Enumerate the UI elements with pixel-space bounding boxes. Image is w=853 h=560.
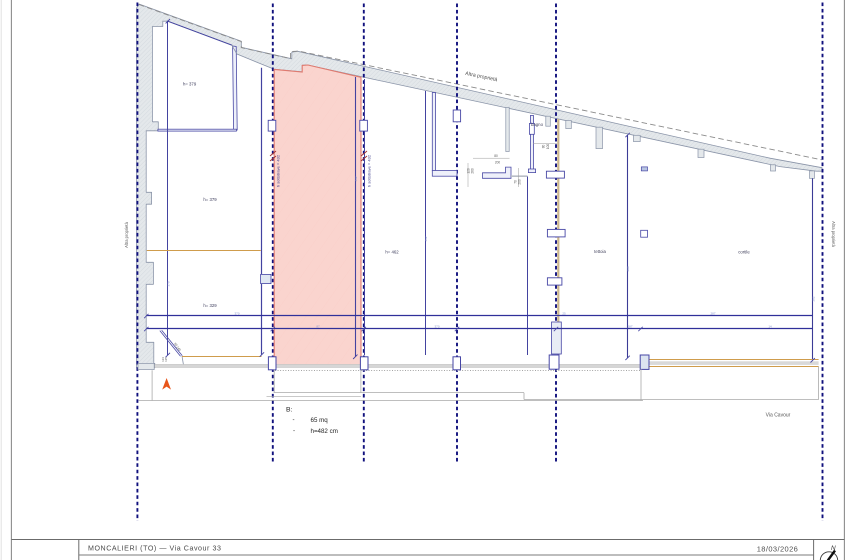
svg-text:-: -: [293, 428, 295, 435]
svg-text:h sottotrave = 432: h sottotrave = 432: [276, 154, 281, 187]
svg-text:287: 287: [710, 312, 715, 316]
svg-text:282: 282: [812, 296, 816, 301]
svg-text:bagno: bagno: [531, 122, 544, 127]
svg-text:287: 287: [627, 325, 632, 329]
svg-text:462: 462: [424, 236, 428, 241]
svg-text:80: 80: [494, 154, 498, 158]
svg-text:432: 432: [354, 176, 358, 181]
svg-text:370: 370: [234, 312, 239, 316]
svg-text:65 mq: 65 mq: [311, 417, 329, 424]
svg-text:h= 379: h= 379: [203, 197, 217, 202]
svg-text:cortile: cortile: [738, 250, 750, 255]
svg-text:87: 87: [316, 325, 320, 329]
svg-text:14: 14: [768, 325, 772, 329]
svg-text:N: N: [831, 545, 836, 552]
svg-text:Altra proprietà: Altra proprietà: [124, 221, 129, 247]
svg-text:379: 379: [166, 281, 170, 286]
svg-text:135: 135: [164, 357, 168, 362]
svg-text:Via Cavour: Via Cavour: [766, 412, 791, 418]
svg-text:h=482 cm: h=482 cm: [311, 428, 338, 435]
svg-text:tettoia: tettoia: [594, 249, 606, 254]
svg-text:370: 370: [434, 325, 439, 329]
svg-text:-: -: [293, 417, 295, 424]
svg-text:290: 290: [626, 266, 630, 271]
svg-text:260: 260: [471, 168, 475, 174]
svg-text:MONCALIERI (TO) — Via Cavour 3: MONCALIERI (TO) — Via Cavour 33: [88, 545, 221, 553]
svg-text:B:: B:: [286, 407, 293, 414]
svg-text:h= 379: h= 379: [183, 82, 197, 87]
svg-text:200: 200: [495, 161, 501, 165]
svg-text:h sottotrave = 432: h sottotrave = 432: [367, 154, 372, 187]
svg-text:200: 200: [518, 179, 522, 185]
svg-text:18/03/2026: 18/03/2026: [757, 544, 799, 553]
svg-text:h= 329: h= 329: [203, 303, 217, 308]
svg-text:100: 100: [546, 144, 550, 150]
svg-text:h= 462: h= 462: [385, 250, 399, 255]
svg-text:Altra proprietà: Altra proprietà: [831, 221, 836, 247]
svg-text:25: 25: [562, 312, 566, 316]
